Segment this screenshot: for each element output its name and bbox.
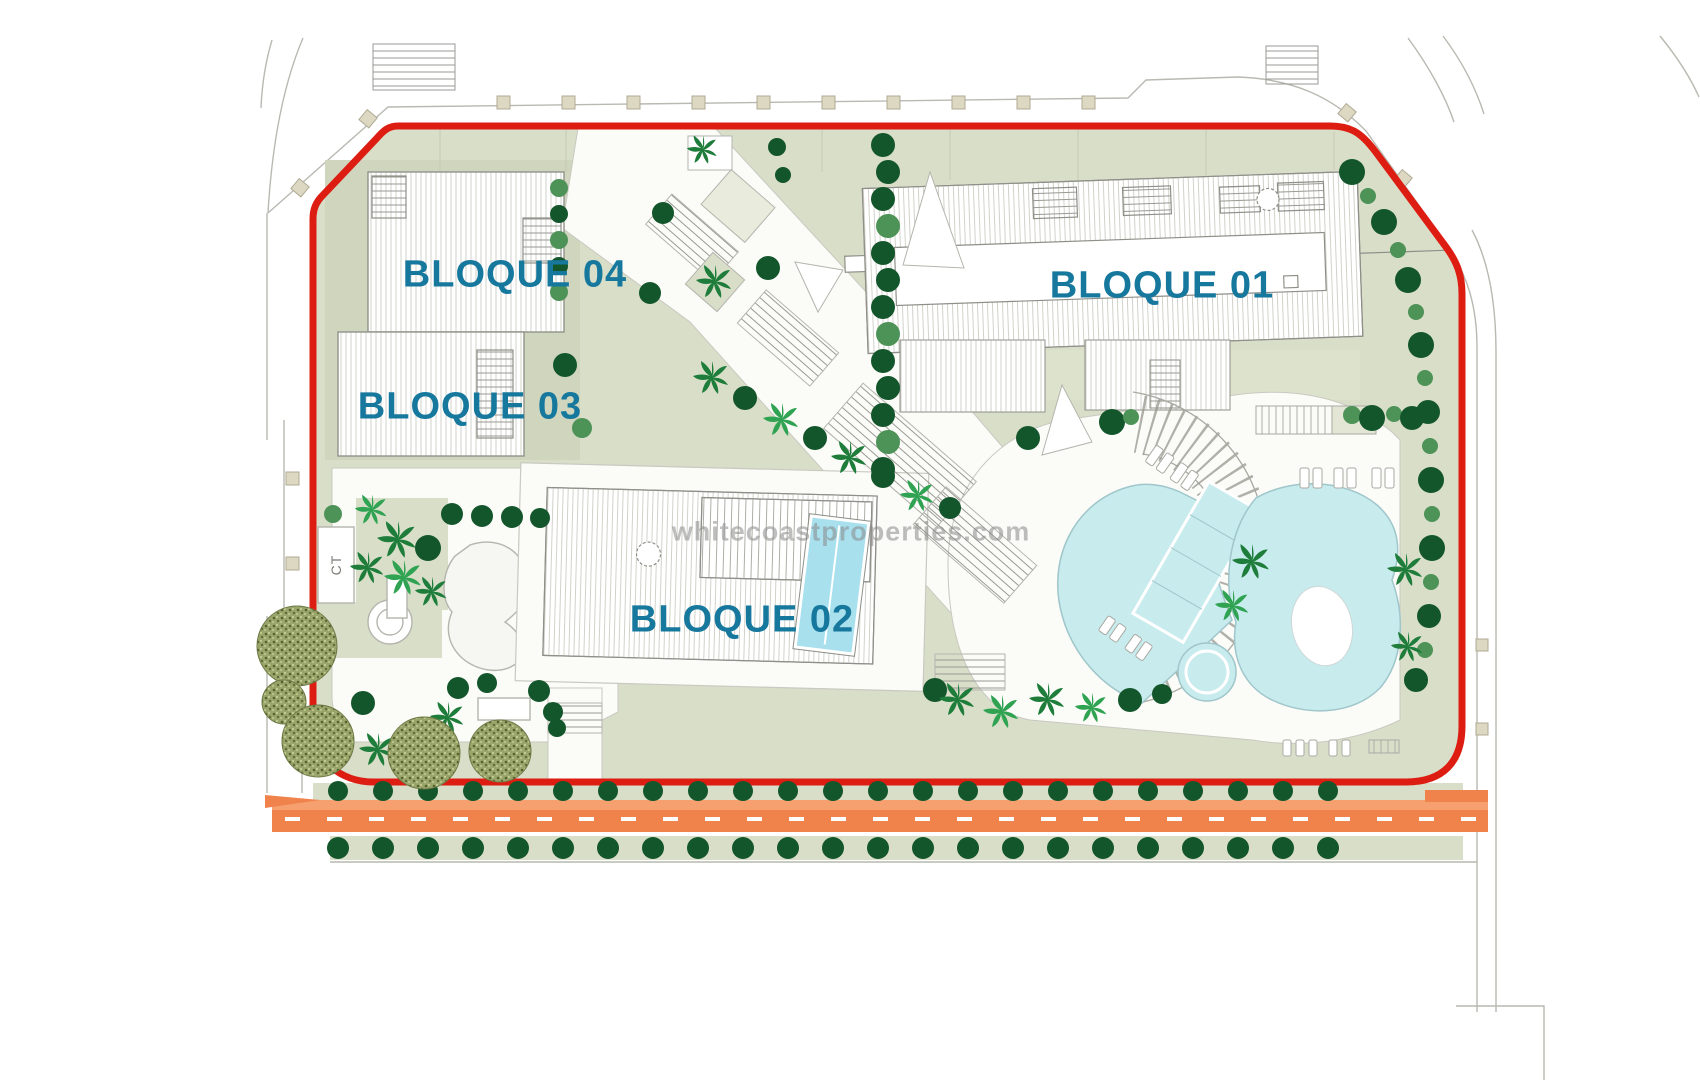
tree — [1048, 781, 1068, 801]
tree — [642, 837, 664, 859]
tree — [1317, 837, 1339, 859]
label-bloque-03: BLOQUE 03 — [358, 386, 582, 429]
tree — [1272, 837, 1294, 859]
tree — [553, 353, 577, 377]
tree — [1152, 684, 1172, 704]
tree — [441, 503, 463, 525]
tree — [1183, 781, 1203, 801]
tree — [417, 837, 439, 859]
tree — [1422, 438, 1438, 454]
tree — [1016, 426, 1040, 450]
tree — [415, 535, 441, 561]
tree — [876, 268, 900, 292]
tree — [1418, 467, 1444, 493]
tree — [868, 781, 888, 801]
tree — [871, 403, 895, 427]
olive-tree — [257, 606, 337, 686]
tree — [1400, 406, 1424, 430]
tree — [1360, 188, 1376, 204]
tree — [477, 673, 497, 693]
parking-ladders — [373, 44, 1318, 90]
tree — [543, 702, 563, 722]
tree — [733, 781, 753, 801]
bloque-02-building — [515, 463, 929, 692]
tree — [507, 837, 529, 859]
tree — [1424, 506, 1440, 522]
fountain — [478, 698, 530, 720]
tree — [1343, 406, 1361, 424]
olive-tree — [469, 720, 531, 782]
tree — [823, 781, 843, 801]
tree — [876, 322, 900, 346]
tree — [687, 837, 709, 859]
tree — [351, 691, 375, 715]
bloque-04-building — [368, 172, 564, 332]
tree — [775, 167, 791, 183]
tree — [876, 376, 900, 400]
tree — [327, 837, 349, 859]
tree — [1408, 304, 1424, 320]
site-plan-canvas: BLOQUE 04 BLOQUE 03 BLOQUE 01 BLOQUE 02 … — [0, 0, 1700, 1080]
tree — [324, 505, 342, 523]
tree — [598, 781, 618, 801]
tree — [732, 837, 754, 859]
tree — [1371, 209, 1397, 235]
tree — [1417, 604, 1441, 628]
tree — [1390, 242, 1406, 258]
tree — [871, 349, 895, 373]
tree — [871, 464, 895, 488]
tree — [1093, 781, 1113, 801]
tree — [876, 430, 900, 454]
tree — [871, 187, 895, 211]
tree — [1182, 837, 1204, 859]
tree — [876, 160, 900, 184]
tree — [501, 506, 523, 528]
tree — [1099, 409, 1125, 435]
tree — [1118, 688, 1142, 712]
tree — [597, 837, 619, 859]
tree — [528, 680, 550, 702]
tree — [871, 133, 895, 157]
tree — [550, 205, 568, 223]
tree — [1423, 574, 1439, 590]
tree — [1138, 781, 1158, 801]
tree — [550, 231, 568, 249]
olive-tree — [388, 717, 460, 789]
tree — [876, 214, 900, 238]
tree — [447, 677, 469, 699]
tree — [328, 781, 348, 801]
tree — [1003, 781, 1023, 801]
tree — [1002, 837, 1024, 859]
tree — [550, 179, 568, 197]
tree — [1092, 837, 1114, 859]
tree — [1273, 781, 1293, 801]
tree — [373, 781, 393, 801]
tree — [958, 781, 978, 801]
label-ct: CT — [328, 555, 344, 576]
tree — [643, 781, 663, 801]
tree — [530, 508, 550, 528]
tree — [1339, 159, 1365, 185]
olive-tree — [282, 705, 354, 777]
tree — [1417, 370, 1433, 386]
tree — [1359, 405, 1385, 431]
tree — [777, 837, 799, 859]
tree — [733, 386, 757, 410]
tree — [871, 241, 895, 265]
tree — [912, 837, 934, 859]
tree — [871, 295, 895, 319]
tree — [1137, 837, 1159, 859]
tree — [1123, 409, 1139, 425]
tree — [1408, 332, 1434, 358]
tree — [1404, 668, 1428, 692]
watermark-text: whitecoastproperties.com — [672, 517, 1031, 548]
tree — [867, 837, 889, 859]
tree — [552, 837, 574, 859]
tree — [1419, 535, 1445, 561]
tree — [471, 505, 493, 527]
tree — [1395, 267, 1421, 293]
tree — [463, 781, 483, 801]
tree — [639, 282, 661, 304]
tree — [778, 781, 798, 801]
tree — [822, 837, 844, 859]
tree — [1386, 406, 1402, 422]
tree — [688, 781, 708, 801]
tree — [1227, 837, 1249, 859]
label-bloque-02: BLOQUE 02 — [630, 599, 854, 642]
tree — [548, 719, 566, 737]
label-bloque-04: BLOQUE 04 — [403, 254, 627, 297]
tree — [553, 781, 573, 801]
tree — [803, 426, 827, 450]
tree — [756, 256, 780, 280]
tree — [768, 138, 786, 156]
tree — [957, 837, 979, 859]
tree — [462, 837, 484, 859]
tree — [652, 202, 674, 224]
label-bloque-01: BLOQUE 01 — [1050, 265, 1274, 308]
tree — [508, 781, 528, 801]
tree — [1047, 837, 1069, 859]
tree — [372, 837, 394, 859]
tree — [1318, 781, 1338, 801]
tree — [913, 781, 933, 801]
tree — [1228, 781, 1248, 801]
